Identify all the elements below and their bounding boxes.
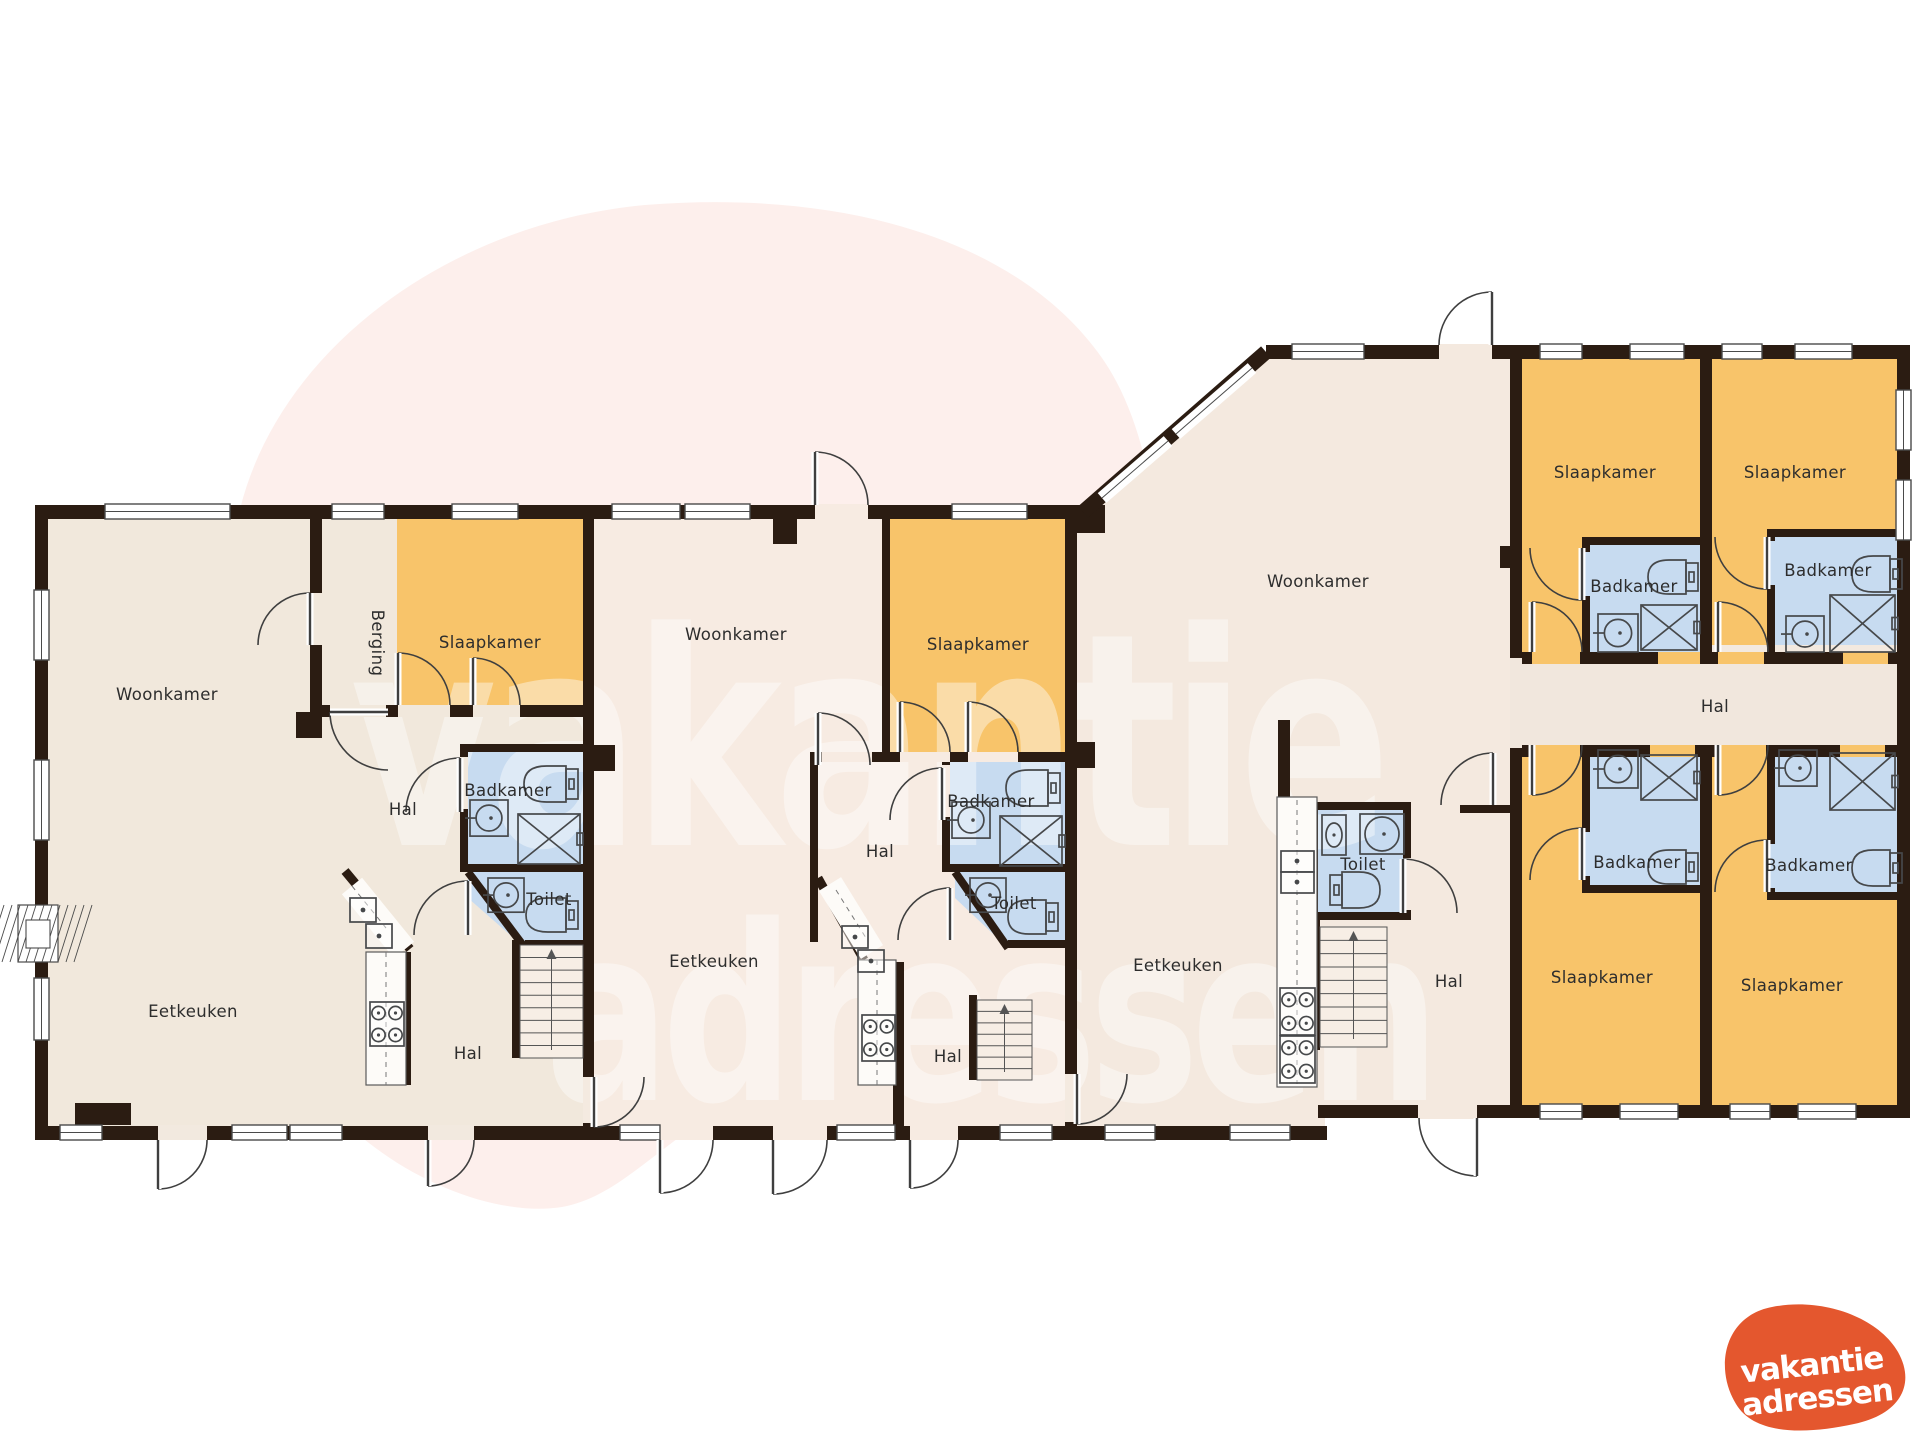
label-wing-slaapkamer-3: Slaapkamer	[1551, 968, 1653, 987]
stove	[862, 1015, 895, 1061]
label-middle-woonkamer: Woonkamer	[685, 625, 787, 644]
door-opening	[398, 705, 450, 717]
burner-dot	[377, 1033, 380, 1036]
wall	[583, 745, 615, 771]
vakantieadressen-logo: vakantie adressen	[1725, 1304, 1905, 1430]
door-opening	[1532, 745, 1580, 757]
label-middle-hal-onder: Hal	[934, 1047, 962, 1066]
wall	[583, 518, 594, 1139]
label-middle-badkamer: Badkamer	[947, 792, 1035, 811]
burner-dot	[869, 1025, 872, 1028]
wall	[1065, 518, 1077, 1126]
label-left-woonkamer: Woonkamer	[116, 685, 218, 704]
stove	[370, 1002, 404, 1046]
label-left-berging: Berging	[368, 610, 387, 677]
door-opening	[473, 705, 520, 717]
door-opening	[1532, 652, 1580, 664]
burner-dot	[1305, 1022, 1308, 1025]
staircase	[977, 1000, 1032, 1080]
burner-dot	[1287, 1070, 1290, 1073]
label-left-slaapkamer: Slaapkamer	[439, 633, 541, 652]
door-opening	[815, 504, 868, 519]
stove	[1280, 988, 1315, 1035]
label-right-eetkeuken: Eetkeuken	[1133, 956, 1223, 975]
sink-drain	[361, 908, 366, 913]
wall	[1700, 757, 1712, 1105]
stove-outline	[1280, 1036, 1315, 1083]
sink-drain	[377, 934, 382, 939]
drain	[506, 893, 510, 897]
label-left-badkamer: Badkamer	[464, 781, 552, 800]
wall	[460, 744, 583, 752]
drain	[1798, 766, 1802, 770]
door-opening	[773, 1125, 827, 1140]
staircase	[520, 945, 583, 1058]
door-opening	[1439, 344, 1492, 359]
door-opening	[900, 752, 950, 762]
fireplace-inner	[26, 920, 50, 948]
label-wing-badkamer-3: Badkamer	[1593, 853, 1681, 872]
burner-dot	[1305, 998, 1308, 1001]
label-left-toilet: Toilet	[525, 890, 572, 909]
sink-drain	[853, 935, 858, 940]
wall	[1500, 546, 1522, 568]
wall	[1460, 805, 1510, 813]
stove	[1280, 1036, 1315, 1083]
stove-outline	[1280, 988, 1315, 1035]
drain	[1618, 631, 1622, 635]
label-right-woonkamer: Woonkamer	[1267, 572, 1369, 591]
label-middle-toilet: Toilet	[990, 894, 1037, 913]
label-middle-slaapkamer: Slaapkamer	[927, 635, 1029, 654]
staircase	[1320, 927, 1387, 1047]
wall	[296, 712, 322, 738]
label-wing-hal: Hal	[1701, 697, 1729, 716]
drain	[1382, 832, 1386, 836]
floorplan-page: vakantie adressen Woonkamer Berging Slaa…	[0, 0, 1920, 1440]
door-opening	[1840, 745, 1885, 757]
wall	[1582, 537, 1700, 545]
burner-dot	[1305, 1070, 1308, 1073]
door-opening	[1718, 652, 1764, 664]
door-swing-arc	[1439, 292, 1492, 345]
burner-dot	[394, 1033, 397, 1036]
label-left-eetkeuken: Eetkeuken	[148, 1002, 238, 1021]
door-opening	[1658, 652, 1700, 664]
label-left-hal-onder: Hal	[454, 1044, 482, 1063]
drain	[1332, 833, 1335, 836]
door-swing-arc	[158, 1140, 207, 1189]
bathroom-wing-tl	[1590, 545, 1700, 652]
sink-drain	[1295, 880, 1300, 885]
label-right-hal: Hal	[1435, 972, 1463, 991]
burner-dot	[1287, 1046, 1290, 1049]
wall	[1767, 892, 1897, 900]
wall	[75, 1103, 131, 1125]
wall	[1278, 720, 1290, 800]
label-wing-badkamer-2: Badkamer	[1784, 561, 1872, 580]
burner-dot	[1287, 998, 1290, 1001]
wall	[1897, 345, 1910, 1118]
wall	[1700, 357, 1712, 652]
label-wing-badkamer-4: Badkamer	[1765, 856, 1853, 875]
burner-dot	[869, 1048, 872, 1051]
drain	[489, 816, 493, 820]
drain	[971, 818, 975, 822]
wall	[460, 864, 583, 872]
wall	[1310, 912, 1411, 920]
wall	[1008, 940, 1065, 948]
wall	[882, 518, 890, 760]
sink-drain	[869, 959, 874, 964]
wall	[1310, 802, 1411, 810]
label-middle-eetkeuken: Eetkeuken	[669, 952, 759, 971]
wall	[512, 940, 520, 1058]
burner-dot	[1287, 1022, 1290, 1025]
door-opening	[1418, 1104, 1477, 1119]
stove-outline	[370, 1002, 404, 1046]
wall	[1065, 742, 1095, 768]
door-opening	[428, 1125, 474, 1140]
burner-dot	[885, 1048, 888, 1051]
label-right-toilet: Toilet	[1339, 855, 1386, 874]
door-opening	[1843, 652, 1888, 664]
drain	[1618, 767, 1622, 771]
door-opening	[158, 1125, 207, 1140]
label-wing-slaapkamer-4: Slaapkamer	[1741, 976, 1843, 995]
door-opening	[1718, 745, 1766, 757]
door-opening	[660, 1125, 713, 1140]
drain	[1805, 632, 1809, 636]
floorplan-drawing: vakantie adressen Woonkamer Berging Slaa…	[0, 0, 1920, 1440]
wall	[969, 995, 977, 1080]
burner-dot	[394, 1011, 397, 1014]
label-wing-slaapkamer-1: Slaapkamer	[1554, 463, 1656, 482]
door-opening	[910, 1125, 958, 1140]
burner-dot	[885, 1025, 888, 1028]
label-middle-hal-boven: Hal	[866, 842, 894, 861]
label-wing-badkamer-1: Badkamer	[1590, 577, 1678, 596]
burner-dot	[377, 1011, 380, 1014]
wall	[1582, 885, 1700, 893]
door-opening	[1510, 658, 1522, 748]
fireplace-hatch	[2, 905, 20, 962]
label-wing-slaapkamer-2: Slaapkamer	[1744, 463, 1846, 482]
door-opening	[822, 752, 872, 762]
door-opening	[968, 752, 1018, 762]
fireplace-hatch	[0, 905, 12, 962]
wall	[1767, 529, 1897, 537]
wall	[810, 752, 818, 942]
label-left-hal-boven: Hal	[389, 800, 417, 819]
sink-drain	[1295, 859, 1300, 864]
wall	[773, 518, 797, 544]
burner-dot	[1305, 1046, 1308, 1049]
